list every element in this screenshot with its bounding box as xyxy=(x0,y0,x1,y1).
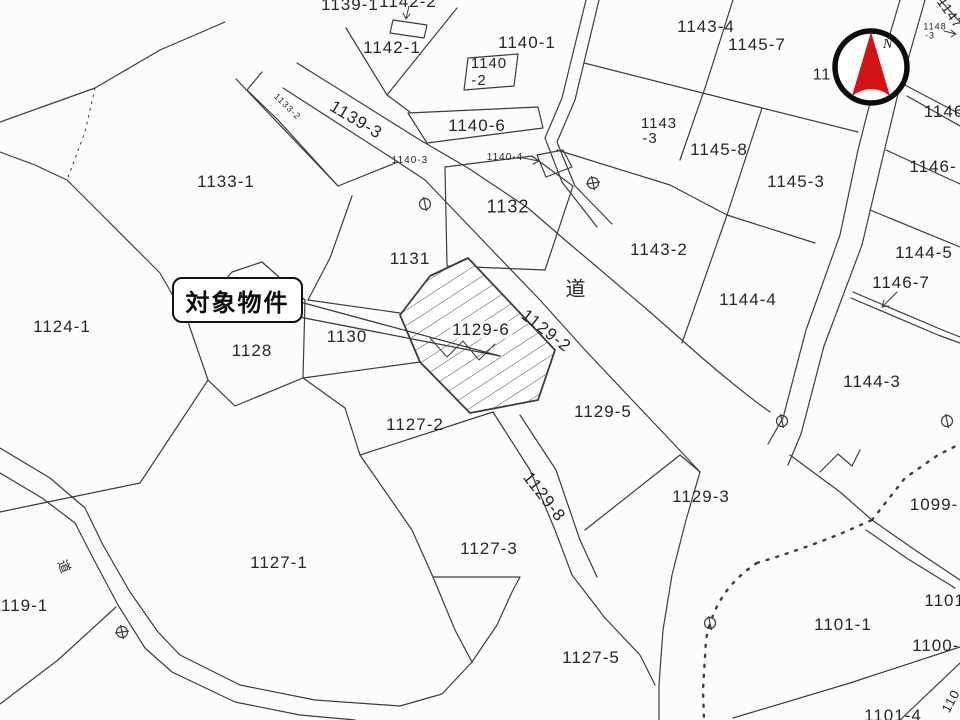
north-compass: N xyxy=(830,26,912,108)
survey-symbols-layer xyxy=(0,0,960,720)
pole-icon xyxy=(777,414,788,428)
subject-property-label: 対象物件 xyxy=(186,283,290,318)
cadastral-map: 1139-11142-21142-11140-11140-21140-61139… xyxy=(0,0,960,720)
subject-property-callout: 対象物件 xyxy=(172,277,303,323)
pole-icon xyxy=(942,414,953,428)
pole-icon xyxy=(420,197,431,211)
pole-icon xyxy=(705,616,716,630)
benchmark-icon xyxy=(115,625,129,639)
compass-n-letter: N xyxy=(882,37,893,52)
benchmark-icon xyxy=(586,176,600,190)
